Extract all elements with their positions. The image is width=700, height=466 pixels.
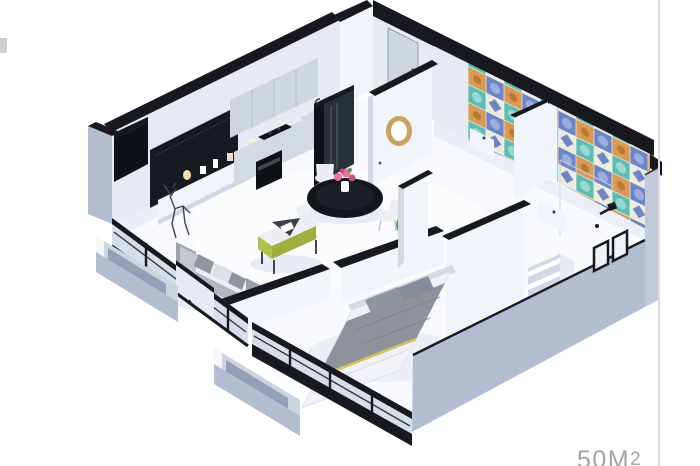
right-divider-line — [658, 0, 660, 466]
floor-area-unit-exponent: 2 — [630, 449, 641, 466]
floor-plan-render — [0, 0, 700, 466]
page: 50M2 — [0, 0, 700, 466]
floor-area-label: 50M2 — [577, 448, 641, 466]
left-edge-tab — [0, 38, 7, 53]
wall-mirror — [386, 116, 412, 146]
floor-area-value: 50M — [577, 446, 630, 466]
